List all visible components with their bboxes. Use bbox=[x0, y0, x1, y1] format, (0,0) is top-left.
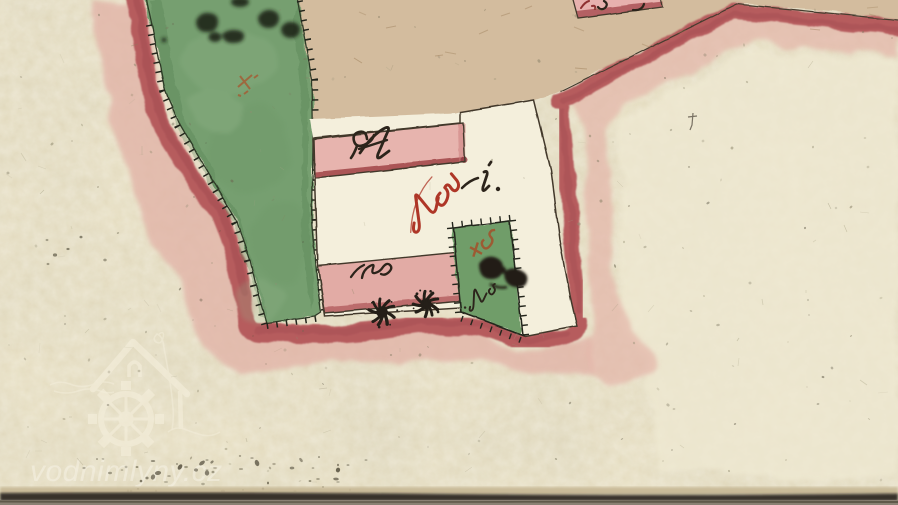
svg-text:vodnimlyny.cz: vodnimlyny.cz bbox=[30, 455, 223, 488]
